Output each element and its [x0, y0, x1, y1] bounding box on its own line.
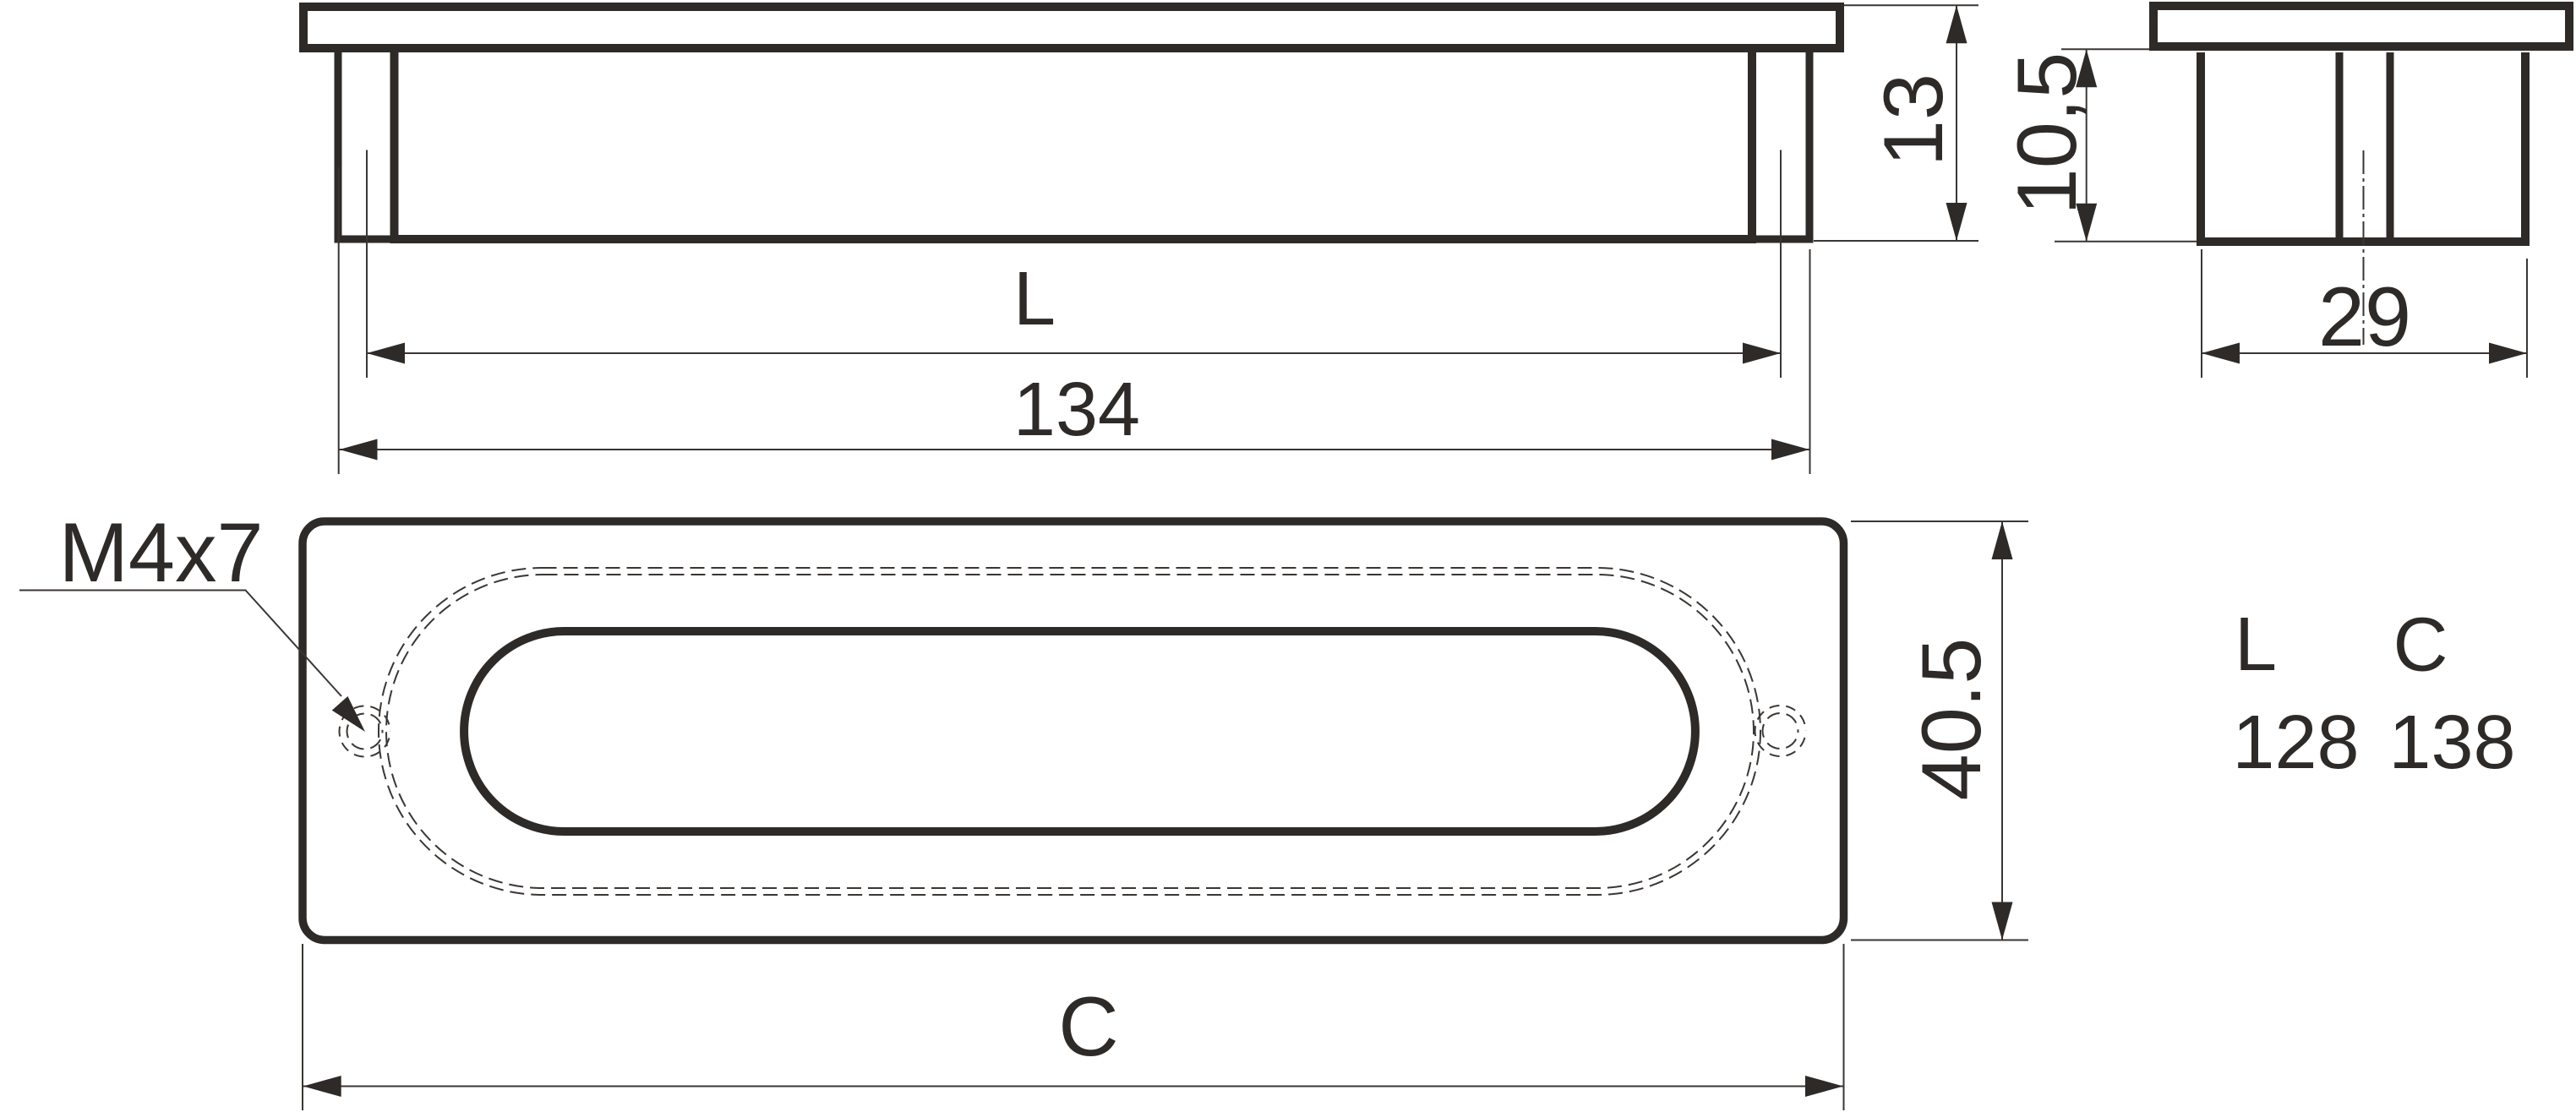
svg-text:C: C [2393, 603, 2448, 688]
svg-text:40.5: 40.5 [1904, 638, 1998, 801]
svg-text:L: L [2235, 602, 2277, 687]
svg-text:C: C [1058, 979, 1119, 1073]
svg-text:10,5: 10,5 [2000, 52, 2093, 215]
svg-text:134: 134 [1013, 368, 1140, 452]
svg-text:128: 128 [2232, 700, 2359, 785]
svg-text:13: 13 [1866, 74, 1960, 166]
svg-text:M4x7: M4x7 [58, 505, 263, 599]
svg-text:138: 138 [2388, 700, 2515, 785]
svg-text:L: L [1013, 257, 1056, 341]
svg-text:29: 29 [2318, 270, 2411, 363]
